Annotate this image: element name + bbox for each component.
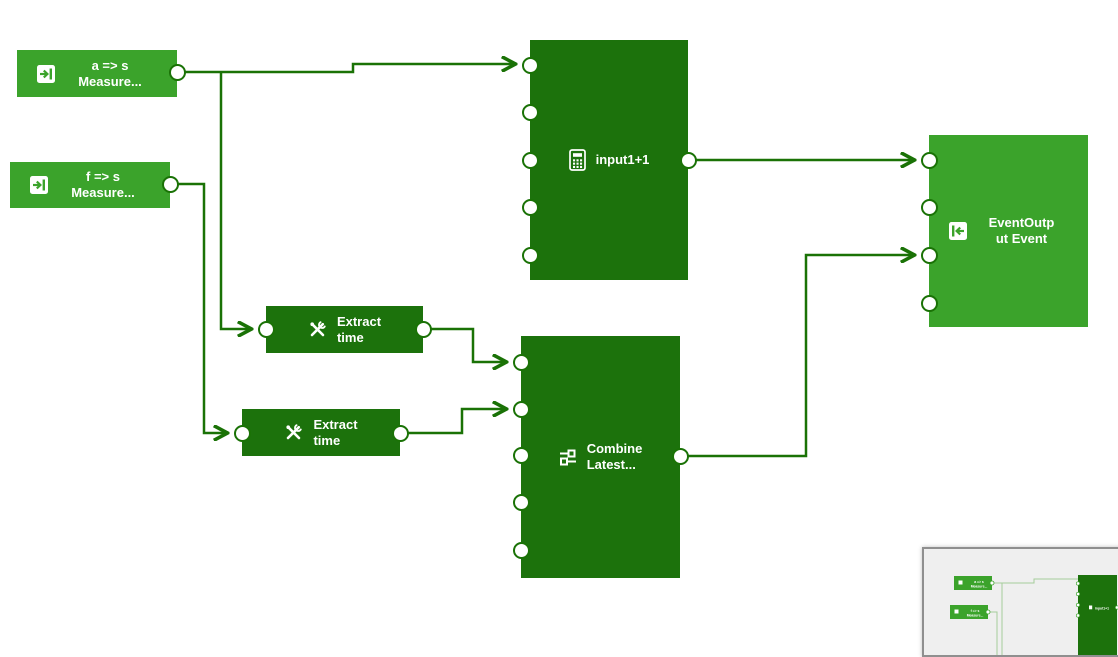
port-calculation-in4[interactable] [522, 199, 539, 216]
node-label: Extract time [337, 314, 381, 346]
minimap-edge [988, 612, 997, 655]
port-calculation-out[interactable] [680, 152, 697, 169]
node-label: Combine Latest... [587, 441, 643, 473]
node-label: EventOutp ut Event [967, 215, 1088, 247]
port-combine-out[interactable] [672, 448, 689, 465]
port-combine-in3[interactable] [513, 447, 530, 464]
calculator-icon [569, 149, 586, 171]
svg-text:f => s: f => s [971, 609, 980, 613]
port-measure-a-out[interactable] [169, 64, 186, 81]
port-measure-f-out[interactable] [162, 176, 179, 193]
flow-canvas[interactable]: a => s Measure... f => s Measure... [0, 0, 1118, 627]
port-calculation-in1[interactable] [522, 57, 539, 74]
svg-text:Measure...: Measure... [967, 613, 984, 617]
input-arrow-icon [30, 176, 48, 194]
edge-measureA-extract1[interactable] [221, 72, 250, 329]
port-combine-in5[interactable] [513, 542, 530, 559]
node-event-output[interactable]: EventOutp ut Event [929, 135, 1088, 327]
minimap-graph: a => s Measure... f => s Measure... inpu… [924, 549, 1118, 655]
node-label: input1+1 [596, 152, 650, 168]
port-extract2-in[interactable] [234, 425, 251, 442]
edge-extract2-combine[interactable] [400, 409, 505, 433]
port-extract1-out[interactable] [415, 321, 432, 338]
combine-icon [559, 449, 577, 466]
port-event-output-in4[interactable] [921, 295, 938, 312]
node-measure-f[interactable]: f => s Measure... [10, 162, 170, 208]
minimap-panel[interactable]: a => s Measure... f => s Measure... inpu… [922, 547, 1118, 657]
port-event-output-in3[interactable] [921, 247, 938, 264]
node-extract-time-2[interactable]: Extract time [242, 409, 400, 456]
port-calculation-in3[interactable] [522, 152, 539, 169]
node-label: a => s Measure... [55, 58, 177, 90]
minimap-node-measure-f: f => s Measure... [950, 605, 990, 619]
node-combine-latest[interactable]: Combine Latest... [521, 336, 680, 578]
node-measure-a[interactable]: a => s Measure... [17, 50, 177, 97]
node-calculation-input1plus1[interactable]: input1+1 [530, 40, 688, 280]
port-calculation-in2[interactable] [522, 104, 539, 121]
minimap-node-measure-a: a => s Measure... [954, 576, 994, 590]
port-extract2-out[interactable] [392, 425, 409, 442]
minimap-edge [992, 579, 1078, 583]
svg-text:input1+1: input1+1 [1095, 606, 1109, 610]
edge-measureA-calculation[interactable] [177, 64, 514, 72]
port-event-output-in2[interactable] [921, 199, 938, 216]
port-calculation-in5[interactable] [522, 247, 539, 264]
port-event-output-in1[interactable] [921, 152, 938, 169]
node-label: f => s Measure... [48, 169, 170, 201]
tools-icon [308, 320, 327, 339]
port-extract1-in[interactable] [258, 321, 275, 338]
edge-combine-output[interactable] [680, 255, 913, 456]
input-arrow-icon [37, 65, 55, 83]
edge-extract1-combine[interactable] [423, 329, 505, 362]
port-combine-in4[interactable] [513, 494, 530, 511]
tools-icon [284, 423, 303, 442]
minimap-node-calculation: input1+1 [1076, 575, 1118, 655]
output-arrow-icon [949, 222, 967, 240]
edge-measureF-extract2[interactable] [170, 184, 226, 433]
svg-text:Measure...: Measure... [971, 584, 988, 588]
node-extract-time-1[interactable]: Extract time [266, 306, 423, 353]
port-combine-in2[interactable] [513, 401, 530, 418]
svg-text:a => s: a => s [974, 580, 984, 584]
port-combine-in1[interactable] [513, 354, 530, 371]
node-label: Extract time [313, 417, 357, 449]
